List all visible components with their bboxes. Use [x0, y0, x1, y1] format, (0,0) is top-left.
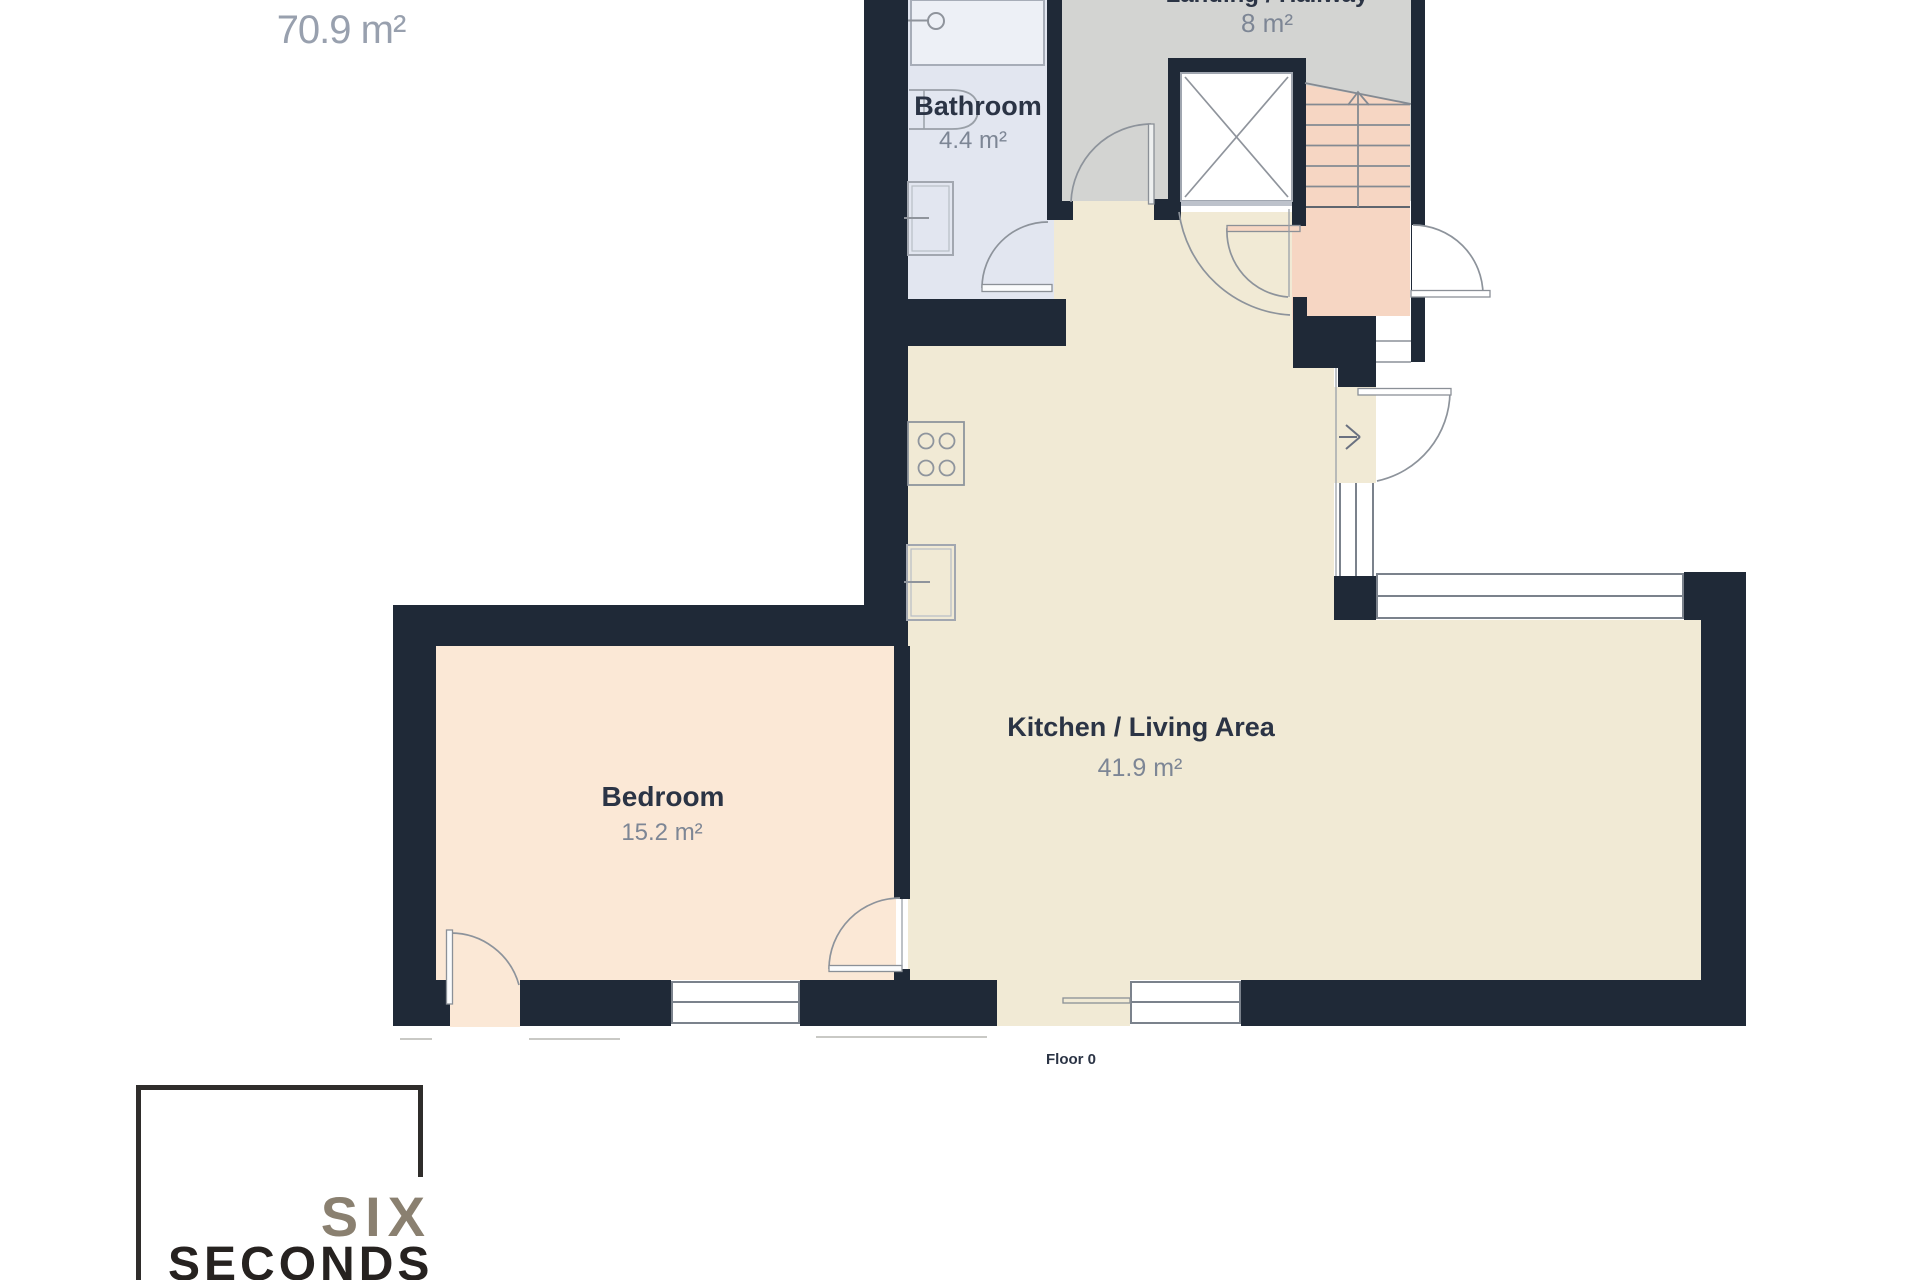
svg-text:Bedroom: Bedroom: [602, 781, 725, 812]
svg-text:4.4 m²: 4.4 m²: [939, 127, 1007, 154]
svg-text:Kitchen / Living Area: Kitchen / Living Area: [1007, 712, 1276, 742]
svg-text:8 m²: 8 m²: [1241, 8, 1293, 38]
svg-text:41.9 m²: 41.9 m²: [1098, 754, 1183, 782]
svg-text:SECONDS: SECONDS: [168, 1238, 433, 1280]
svg-text:Landing / Hallway: Landing / Hallway: [1166, 0, 1369, 8]
svg-text:15.2 m²: 15.2 m²: [621, 819, 702, 846]
svg-text:Bathroom: Bathroom: [914, 91, 1042, 121]
svg-text:70.9 m²: 70.9 m²: [277, 8, 406, 52]
svg-text:Floor 0: Floor 0: [1046, 1051, 1096, 1068]
